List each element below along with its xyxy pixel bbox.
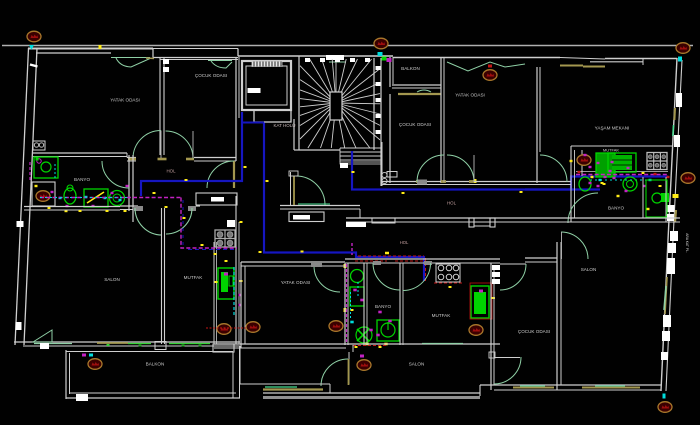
svg-text:ÇOCUK ODASI: ÇOCUK ODASI: [518, 329, 550, 334]
svg-text:SALON: SALON: [409, 362, 425, 367]
svg-text:BALKON: BALKON: [146, 362, 165, 367]
svg-text:SALON: SALON: [104, 277, 120, 282]
svg-text:ÇOCUK ODASI: ÇOCUK ODASI: [399, 122, 431, 127]
svg-text:BANYO: BANYO: [375, 304, 392, 309]
svg-text:HOL: HOL: [166, 169, 176, 174]
svg-text:BALKON: BALKON: [401, 66, 420, 71]
svg-text:ÇOCUK ODASI: ÇOCUK ODASI: [195, 73, 227, 78]
svg-text:MUTFAK: MUTFAK: [603, 148, 620, 153]
svg-text:YATAK ODASI: YATAK ODASI: [455, 93, 485, 98]
svg-text:BANYO: BANYO: [74, 177, 91, 182]
svg-text:SALON: SALON: [581, 267, 597, 272]
svg-text:MUTFAK: MUTFAK: [184, 275, 204, 280]
svg-text:YATAK ODASI: YATAK ODASI: [110, 98, 140, 103]
svg-text:BANYO: BANYO: [608, 206, 625, 211]
svg-text:ARA KAT PL.: ARA KAT PL.: [685, 233, 689, 253]
svg-text:MUTFAK: MUTFAK: [432, 313, 452, 318]
svg-text:KAT HOLÜ: KAT HOLÜ: [273, 122, 295, 128]
svg-text:HOL: HOL: [400, 240, 409, 245]
svg-text:YATAK ODASI: YATAK ODASI: [281, 280, 311, 285]
svg-text:HOL: HOL: [447, 201, 457, 206]
svg-text:YAŞAM MEKANI: YAŞAM MEKANI: [595, 126, 630, 131]
